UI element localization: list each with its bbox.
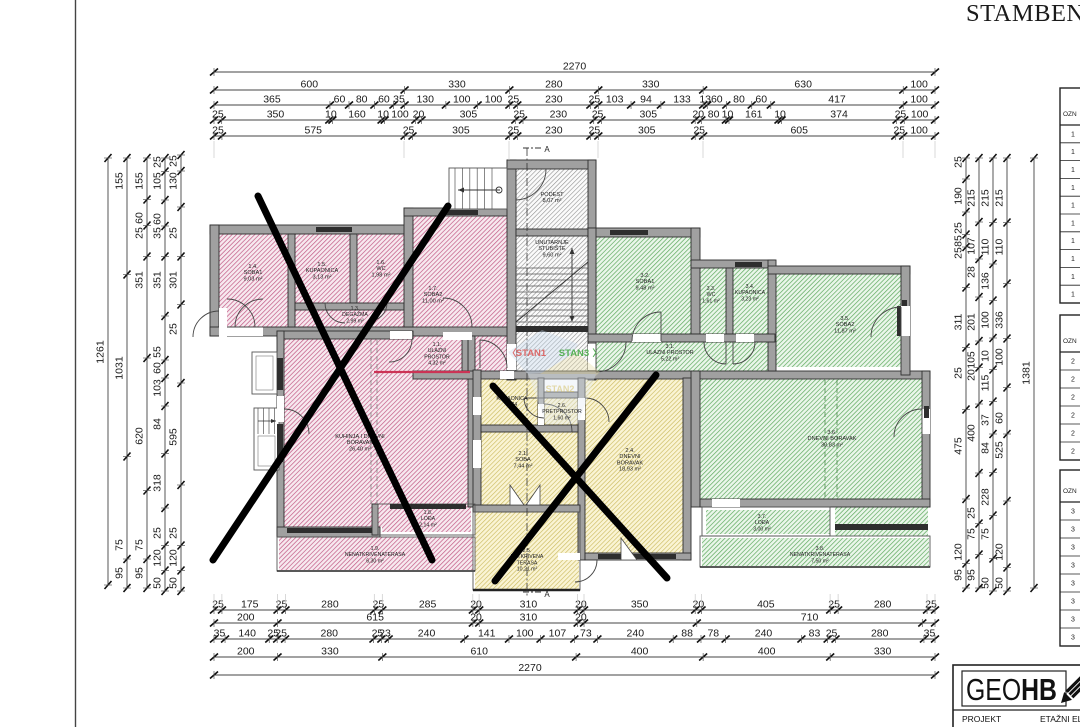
svg-text:25: 25 — [168, 227, 180, 239]
svg-text:50: 50 — [152, 577, 164, 589]
svg-text:OZN: OZN — [1063, 338, 1077, 345]
svg-text:55: 55 — [152, 346, 164, 358]
svg-text:160: 160 — [348, 109, 366, 121]
svg-text:615: 615 — [366, 612, 384, 624]
svg-text:310: 310 — [520, 612, 538, 624]
svg-text:PROJEKT: PROJEKT — [962, 714, 1001, 724]
svg-text:1: 1 — [1071, 274, 1075, 281]
svg-text:1,61 m²: 1,61 m² — [702, 298, 720, 304]
svg-text:60: 60 — [711, 94, 723, 106]
svg-text:200: 200 — [237, 646, 255, 658]
svg-text:7,50 m²: 7,50 m² — [811, 558, 829, 564]
svg-text:240: 240 — [755, 628, 773, 640]
svg-text:ETAŽNI ELA: ETAŽNI ELA — [1040, 714, 1080, 724]
svg-text:228: 228 — [980, 488, 992, 506]
svg-text:417: 417 — [828, 94, 846, 106]
svg-text:336: 336 — [994, 311, 1006, 329]
svg-text:305: 305 — [452, 125, 470, 137]
svg-text:620: 620 — [134, 427, 146, 445]
svg-text:400: 400 — [758, 646, 776, 658]
svg-text:3: 3 — [1071, 617, 1075, 624]
svg-text:285: 285 — [419, 599, 437, 611]
svg-text:3,23 m²: 3,23 m² — [741, 296, 759, 302]
svg-text:60: 60 — [152, 213, 164, 225]
svg-text:1.8.: 1.8. — [424, 510, 433, 516]
svg-text:110: 110 — [994, 238, 1006, 255]
svg-text:28: 28 — [966, 266, 978, 278]
svg-text:78: 78 — [707, 628, 719, 640]
svg-text:25: 25 — [966, 507, 978, 519]
svg-text:60: 60 — [994, 412, 1006, 424]
svg-text:103: 103 — [606, 94, 624, 106]
svg-text:PROSTOR: PROSTOR — [424, 354, 450, 360]
svg-text:LOĐA: LOĐA — [755, 520, 770, 526]
svg-text:190: 190 — [953, 187, 965, 205]
svg-text:105: 105 — [966, 351, 978, 369]
svg-text:25: 25 — [168, 155, 180, 167]
svg-text:1.3.: 1.3. — [351, 306, 360, 312]
svg-text:50: 50 — [168, 577, 180, 589]
svg-text:610: 610 — [470, 646, 488, 658]
svg-text:BORAVAK: BORAVAK — [347, 440, 373, 446]
svg-text:75: 75 — [966, 528, 978, 540]
svg-text:ULAZNI: ULAZNI — [428, 348, 446, 354]
svg-text:60: 60 — [755, 94, 767, 106]
svg-text:35: 35 — [214, 628, 226, 640]
svg-text:230: 230 — [545, 125, 563, 137]
svg-text:2.1.: 2.1. — [518, 451, 528, 457]
svg-text:100: 100 — [980, 311, 992, 329]
svg-text:ULAZNI PROSTOR: ULAZNI PROSTOR — [646, 350, 693, 356]
svg-text:NENATKRIVENATERASA: NENATKRIVENATERASA — [790, 552, 851, 558]
svg-text:50: 50 — [980, 577, 992, 589]
svg-text:280: 280 — [871, 628, 889, 640]
svg-text:SOBA1: SOBA1 — [636, 279, 655, 285]
svg-text:PODEST: PODEST — [540, 192, 564, 198]
svg-text:3.3.: 3.3. — [707, 286, 716, 292]
svg-text:120: 120 — [953, 543, 965, 561]
svg-text:305: 305 — [640, 109, 658, 121]
svg-text:161: 161 — [745, 109, 763, 121]
svg-text:230: 230 — [550, 109, 568, 121]
svg-text:240: 240 — [418, 628, 436, 640]
svg-text:400: 400 — [966, 424, 978, 442]
svg-text:3.6.: 3.6. — [827, 430, 837, 436]
svg-text:1.9.: 1.9. — [371, 546, 380, 552]
svg-text:280: 280 — [321, 599, 339, 611]
svg-text:710: 710 — [801, 612, 819, 624]
svg-text:5,22 m²: 5,22 m² — [661, 356, 679, 362]
svg-text:3: 3 — [1071, 545, 1075, 552]
svg-text:215: 215 — [980, 189, 992, 207]
svg-text:2.6.: 2.6. — [558, 403, 567, 409]
svg-text:120: 120 — [994, 543, 1006, 561]
svg-text:110: 110 — [980, 238, 992, 255]
svg-text:35: 35 — [924, 628, 936, 640]
svg-text:1031: 1031 — [114, 356, 126, 380]
svg-text:305: 305 — [460, 109, 478, 121]
svg-text:215: 215 — [994, 189, 1006, 207]
svg-text:60: 60 — [334, 94, 346, 106]
svg-text:6,30 m²: 6,30 m² — [366, 558, 384, 564]
svg-text:UNUTARNJE: UNUTARNJE — [535, 240, 569, 246]
svg-text:1.1.: 1.1. — [433, 342, 442, 348]
svg-text:330: 330 — [874, 646, 892, 658]
svg-text:318: 318 — [152, 474, 164, 492]
svg-text:30,83 m²: 30,83 m² — [821, 442, 843, 448]
svg-text:100: 100 — [485, 94, 503, 106]
svg-text:600: 600 — [301, 79, 319, 91]
svg-text:80: 80 — [708, 109, 720, 121]
svg-text:80: 80 — [733, 94, 745, 106]
svg-text:475: 475 — [953, 437, 965, 455]
svg-text:WC: WC — [376, 266, 385, 272]
svg-text:311: 311 — [953, 313, 965, 330]
svg-text:630: 630 — [794, 79, 812, 91]
svg-text:133: 133 — [673, 94, 691, 106]
svg-text:60: 60 — [378, 94, 390, 106]
svg-text:2: 2 — [1071, 449, 1075, 456]
svg-text:2: 2 — [1071, 413, 1075, 420]
svg-text:155: 155 — [134, 172, 146, 190]
svg-text:1: 1 — [1071, 292, 1075, 299]
svg-text:75: 75 — [134, 539, 146, 551]
svg-text:100: 100 — [911, 109, 929, 121]
svg-text:DNEVNI: DNEVNI — [619, 454, 641, 460]
svg-text:2: 2 — [1071, 359, 1075, 366]
svg-text:3.1.: 3.1. — [666, 344, 675, 350]
svg-text:88: 88 — [681, 628, 693, 640]
svg-text:155: 155 — [114, 172, 126, 190]
svg-text:OZN: OZN — [1063, 111, 1077, 118]
svg-text:95: 95 — [966, 569, 978, 581]
svg-text:100: 100 — [516, 628, 534, 640]
svg-text:2.4.: 2.4. — [625, 448, 635, 454]
svg-text:330: 330 — [642, 79, 660, 91]
svg-text:18,93 m²: 18,93 m² — [619, 467, 641, 473]
svg-text:9,48 m²: 9,48 m² — [636, 285, 655, 291]
svg-text:1.6.: 1.6. — [376, 260, 386, 266]
svg-text:3.5.: 3.5. — [840, 316, 850, 322]
svg-text:1261: 1261 — [95, 340, 107, 364]
svg-text:107: 107 — [549, 628, 567, 640]
svg-text:10,21 m²: 10,21 m² — [517, 567, 538, 573]
svg-text:1: 1 — [1071, 167, 1075, 174]
svg-text:141: 141 — [478, 628, 496, 640]
svg-text:TERASA: TERASA — [517, 560, 538, 566]
svg-text:DNEVNI BORAVAK: DNEVNI BORAVAK — [808, 436, 857, 442]
svg-text:A: A — [544, 590, 550, 599]
svg-text:2,14 m²: 2,14 m² — [419, 522, 437, 528]
svg-text:95: 95 — [953, 569, 965, 581]
svg-text:1381: 1381 — [1021, 361, 1033, 385]
svg-text:100: 100 — [910, 79, 928, 91]
svg-text:37: 37 — [980, 414, 992, 426]
svg-text:8,07 m²: 8,07 m² — [543, 198, 562, 204]
svg-text:310: 310 — [520, 599, 538, 611]
svg-text:1.7.: 1.7. — [428, 286, 438, 292]
svg-text:SOBA: SOBA — [515, 457, 531, 463]
svg-text:STAN2: STAN2 — [546, 384, 575, 394]
svg-text:330: 330 — [448, 79, 466, 91]
svg-text:140: 140 — [238, 628, 256, 640]
svg-text:3.2.: 3.2. — [640, 273, 650, 279]
svg-text:WC: WC — [707, 292, 716, 298]
svg-text:75: 75 — [114, 539, 126, 551]
svg-text:BORAVAK: BORAVAK — [617, 460, 643, 466]
svg-text:STAMBENA: STAMBENA — [966, 0, 1080, 27]
svg-text:350: 350 — [631, 599, 649, 611]
svg-text:1: 1 — [1071, 203, 1075, 210]
svg-text:374: 374 — [830, 109, 848, 121]
svg-text:350: 350 — [267, 109, 285, 121]
svg-text:95: 95 — [134, 567, 146, 579]
svg-text:PRETPROSTOR: PRETPROSTOR — [542, 409, 582, 415]
svg-text:85: 85 — [953, 235, 965, 247]
svg-text:3: 3 — [1071, 527, 1075, 534]
svg-text:84: 84 — [152, 418, 164, 430]
svg-text:NENATKRIVENATERASA: NENATKRIVENATERASA — [345, 552, 406, 558]
svg-text:1: 1 — [1071, 185, 1075, 192]
svg-text:26,40 m²: 26,40 m² — [349, 446, 371, 452]
svg-text:3: 3 — [1071, 599, 1075, 606]
svg-text:73: 73 — [580, 628, 592, 640]
svg-text:50: 50 — [994, 577, 1006, 589]
svg-text:94: 94 — [640, 94, 652, 106]
svg-text:DEGAŽMA: DEGAŽMA — [342, 310, 368, 318]
svg-text:215: 215 — [966, 189, 978, 207]
svg-text:3,00 m²: 3,00 m² — [753, 526, 771, 532]
svg-text:25: 25 — [953, 222, 965, 234]
svg-text:GEOHB: GEOHB — [966, 672, 1057, 706]
svg-text:〉: 〉 — [592, 348, 601, 358]
svg-text:365: 365 — [263, 94, 281, 106]
svg-text:2270: 2270 — [563, 61, 587, 73]
svg-text:100: 100 — [910, 94, 928, 106]
svg-text:3: 3 — [1071, 563, 1075, 570]
svg-text:3: 3 — [1071, 635, 1075, 642]
svg-text:2: 2 — [1071, 395, 1075, 402]
svg-text:100: 100 — [910, 125, 928, 137]
svg-text:25: 25 — [152, 156, 164, 168]
svg-text:280: 280 — [545, 79, 563, 91]
svg-text:400: 400 — [631, 646, 649, 658]
svg-text:120: 120 — [152, 549, 164, 567]
svg-text:136: 136 — [980, 272, 992, 290]
svg-text:25: 25 — [168, 527, 180, 539]
svg-text:1,60 m²: 1,60 m² — [553, 415, 571, 421]
svg-text:280: 280 — [321, 628, 339, 640]
svg-text:405: 405 — [757, 599, 775, 611]
svg-text:2270: 2270 — [518, 662, 542, 674]
svg-text:605: 605 — [790, 125, 808, 137]
svg-text:9,03 m²: 9,03 m² — [244, 276, 263, 282]
svg-text:3.8.: 3.8. — [816, 546, 825, 552]
svg-text:11,00 m²: 11,00 m² — [422, 298, 444, 304]
svg-text:107: 107 — [966, 237, 978, 255]
svg-text:SOBA1: SOBA1 — [244, 270, 263, 276]
svg-text:3.7.: 3.7. — [758, 514, 767, 520]
svg-text:A: A — [544, 145, 550, 154]
svg-text:7,44 m²: 7,44 m² — [514, 463, 533, 469]
svg-text:305: 305 — [638, 125, 656, 137]
svg-text:115: 115 — [980, 374, 992, 391]
svg-text:4,32 m²: 4,32 m² — [428, 361, 446, 367]
svg-text:1,98 m²: 1,98 m² — [372, 272, 391, 278]
svg-text:KUPAONICA: KUPAONICA — [735, 290, 766, 296]
svg-text:80: 80 — [356, 94, 368, 106]
svg-text:SOBA2: SOBA2 — [836, 322, 855, 328]
svg-text:130: 130 — [416, 94, 434, 106]
svg-text:240: 240 — [627, 628, 645, 640]
svg-text:25: 25 — [152, 527, 164, 539]
svg-text:100: 100 — [994, 348, 1006, 366]
svg-text:1: 1 — [1071, 149, 1075, 156]
svg-text:280: 280 — [874, 599, 892, 611]
svg-text:201: 201 — [966, 313, 978, 331]
svg-text:3: 3 — [1071, 509, 1075, 516]
svg-text:100: 100 — [453, 94, 471, 106]
svg-text:230: 230 — [545, 94, 563, 106]
svg-text:595: 595 — [168, 428, 180, 446]
svg-text:2,99 m²: 2,99 m² — [346, 318, 364, 324]
svg-text:1: 1 — [1071, 131, 1075, 138]
svg-text:100: 100 — [391, 109, 409, 121]
svg-text:STAN1: STAN1 — [516, 348, 547, 359]
svg-text:575: 575 — [304, 125, 322, 137]
svg-text:KUPAONICA: KUPAONICA — [306, 268, 339, 274]
svg-text:STUBIŠTE: STUBIŠTE — [538, 245, 566, 252]
svg-text:351: 351 — [152, 271, 164, 289]
svg-text:95: 95 — [114, 567, 126, 579]
svg-text:1: 1 — [1071, 238, 1075, 245]
svg-text:LOĐA: LOĐA — [421, 516, 436, 522]
svg-text:OZN: OZN — [1063, 488, 1077, 495]
svg-text:9,60 m²: 9,60 m² — [543, 252, 562, 258]
svg-text:330: 330 — [321, 646, 339, 658]
svg-text:25: 25 — [953, 156, 965, 168]
svg-text:525: 525 — [994, 441, 1006, 459]
svg-text:301: 301 — [168, 271, 180, 289]
svg-text:1: 1 — [1071, 220, 1075, 227]
svg-text:35: 35 — [393, 94, 405, 106]
svg-text:1: 1 — [1071, 256, 1075, 263]
svg-text:2: 2 — [1071, 377, 1075, 384]
svg-text:60: 60 — [134, 212, 146, 224]
svg-text:200: 200 — [237, 612, 255, 624]
svg-text:25: 25 — [953, 247, 965, 259]
svg-text:83: 83 — [809, 628, 821, 640]
svg-text:11,87 m²: 11,87 m² — [834, 328, 856, 334]
svg-text:120: 120 — [168, 549, 180, 567]
svg-text:84: 84 — [980, 442, 992, 454]
svg-text:25: 25 — [168, 323, 180, 335]
svg-text:1.4.: 1.4. — [248, 264, 258, 270]
svg-text:10: 10 — [980, 350, 992, 362]
svg-text:SOBA2: SOBA2 — [424, 292, 443, 298]
svg-text:1.5.: 1.5. — [317, 262, 327, 268]
svg-text:3.4.: 3.4. — [746, 284, 755, 290]
svg-text:3: 3 — [1071, 581, 1075, 588]
svg-text:3,13 m²: 3,13 m² — [313, 274, 332, 280]
svg-text:25: 25 — [953, 367, 965, 379]
svg-text:〈: 〈 — [507, 348, 516, 358]
svg-text:175: 175 — [241, 599, 259, 611]
svg-text:75: 75 — [980, 528, 992, 540]
svg-text:2: 2 — [1071, 431, 1075, 438]
svg-text:351: 351 — [134, 271, 146, 289]
svg-text:STAN3: STAN3 — [559, 348, 589, 359]
